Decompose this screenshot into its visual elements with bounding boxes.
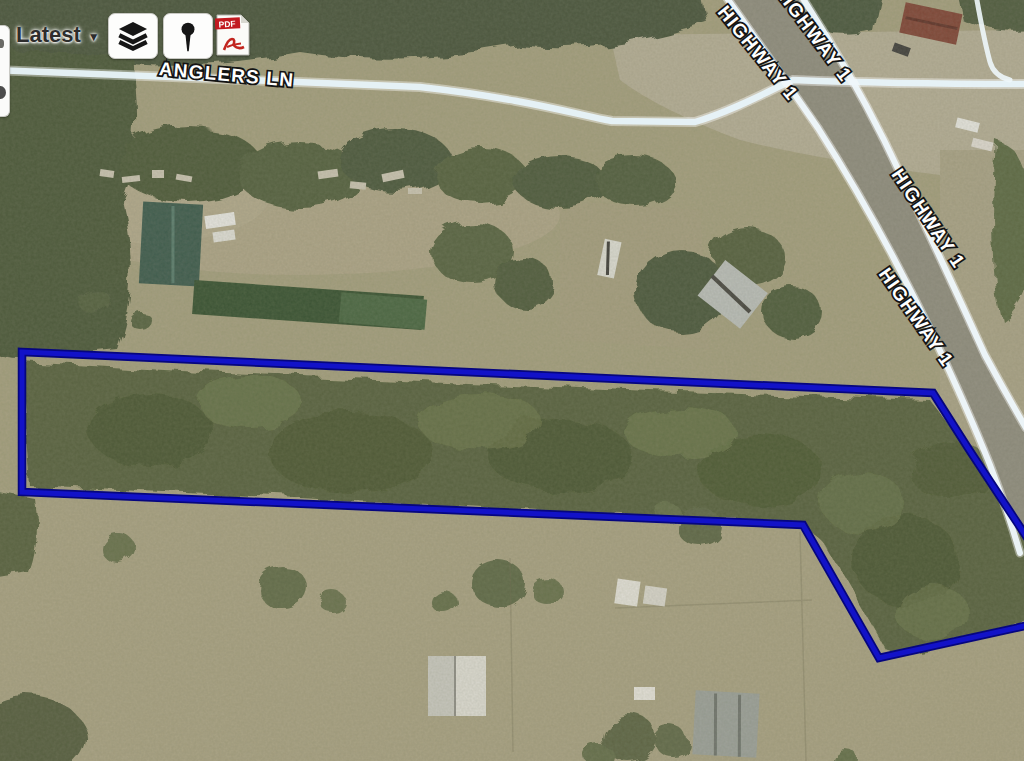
- pdf-icon: PDF: [215, 12, 251, 58]
- layers-icon: [114, 19, 152, 53]
- edge-panel-glyph: [0, 39, 4, 48]
- edge-panel-glyph: [0, 86, 6, 99]
- pdf-export-button[interactable]: PDF: [215, 12, 251, 58]
- pin-icon: [169, 18, 207, 54]
- layers-button[interactable]: [108, 13, 158, 59]
- edge-panel-fragment[interactable]: [0, 25, 10, 117]
- svg-text:PDF: PDF: [218, 19, 236, 30]
- marker-button[interactable]: [163, 13, 213, 59]
- aerial-map-canvas: ANGLERS LN HIGHWAY 1 HIGHWAY 1 HIGHWAY 1…: [0, 0, 1024, 761]
- app-window: ANGLERS LN HIGHWAY 1 HIGHWAY 1 HIGHWAY 1…: [0, 0, 1024, 768]
- latest-dropdown[interactable]: Latest ▼: [16, 22, 100, 48]
- chevron-down-icon: ▼: [88, 30, 100, 44]
- latest-dropdown-label: Latest: [16, 22, 81, 48]
- aerial-map[interactable]: ANGLERS LN HIGHWAY 1 HIGHWAY 1 HIGHWAY 1…: [0, 0, 1024, 761]
